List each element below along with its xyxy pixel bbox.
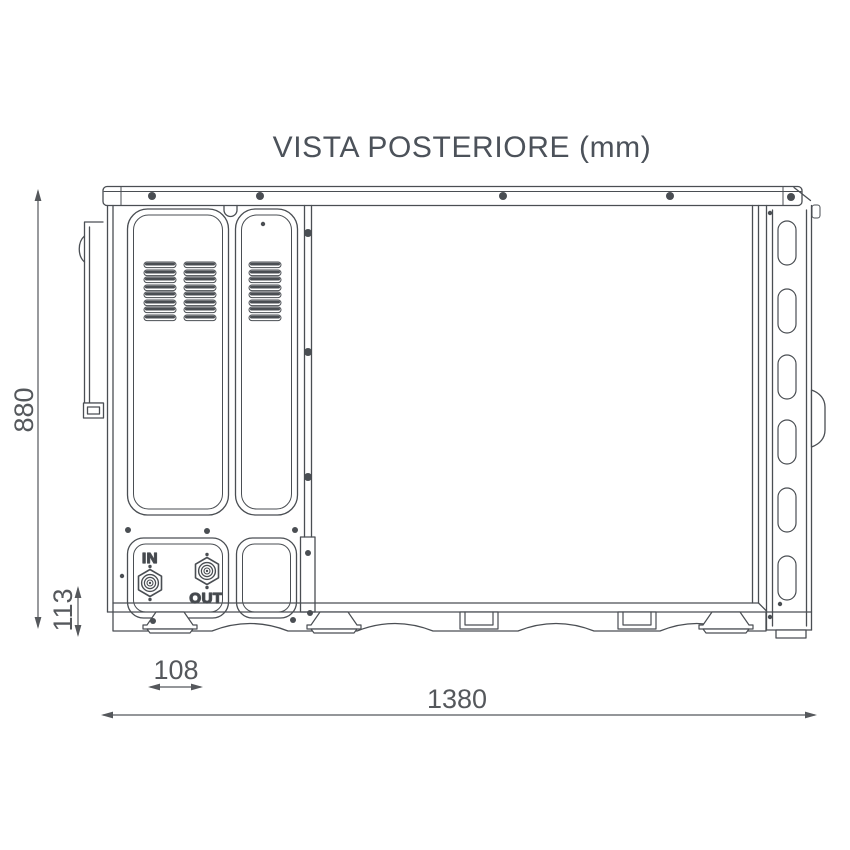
vent-panel-large bbox=[128, 209, 229, 515]
slotted-side-panel bbox=[767, 205, 826, 638]
vent-panel-small bbox=[236, 209, 298, 515]
base-tab bbox=[618, 612, 656, 629]
screws bbox=[120, 192, 795, 624]
dimension-overall-width-value: 1380 bbox=[427, 684, 487, 714]
hydraulic-panel: IN OUT bbox=[128, 538, 229, 618]
dimension-overall-width: 1380 bbox=[101, 684, 817, 718]
inlet-label: IN bbox=[142, 550, 158, 567]
foot bbox=[307, 612, 361, 633]
base-and-feet bbox=[113, 612, 766, 633]
dimension-foot-offset-value: 108 bbox=[153, 655, 198, 685]
inlet-connector bbox=[139, 565, 162, 601]
base-tab bbox=[460, 612, 498, 629]
dimensions: 880 113 108 1380 bbox=[9, 189, 817, 718]
drawing-title: VISTA POSTERIORE (mm) bbox=[273, 131, 652, 164]
dimension-inlet-height: 113 bbox=[48, 586, 81, 637]
heat-pump-unit: IN OUT bbox=[79, 187, 825, 639]
vent-louvers bbox=[144, 262, 281, 321]
dimension-overall-height-value: 880 bbox=[9, 387, 39, 432]
dimension-foot-offset: 108 bbox=[148, 655, 203, 690]
foot bbox=[699, 612, 753, 633]
left-bracket bbox=[79, 222, 103, 418]
dimension-overall-height: 880 bbox=[9, 189, 41, 629]
top-rail bbox=[103, 187, 811, 206]
outlet-connector bbox=[196, 553, 219, 589]
dimension-inlet-height-value: 113 bbox=[48, 588, 78, 631]
rear-view-technical-drawing: VISTA POSTERIORE (mm) bbox=[0, 0, 850, 850]
outlet-label: OUT bbox=[189, 590, 222, 607]
technical-drawing-page: VISTA POSTERIORE (mm) bbox=[0, 0, 850, 850]
blank-panel bbox=[237, 538, 297, 618]
